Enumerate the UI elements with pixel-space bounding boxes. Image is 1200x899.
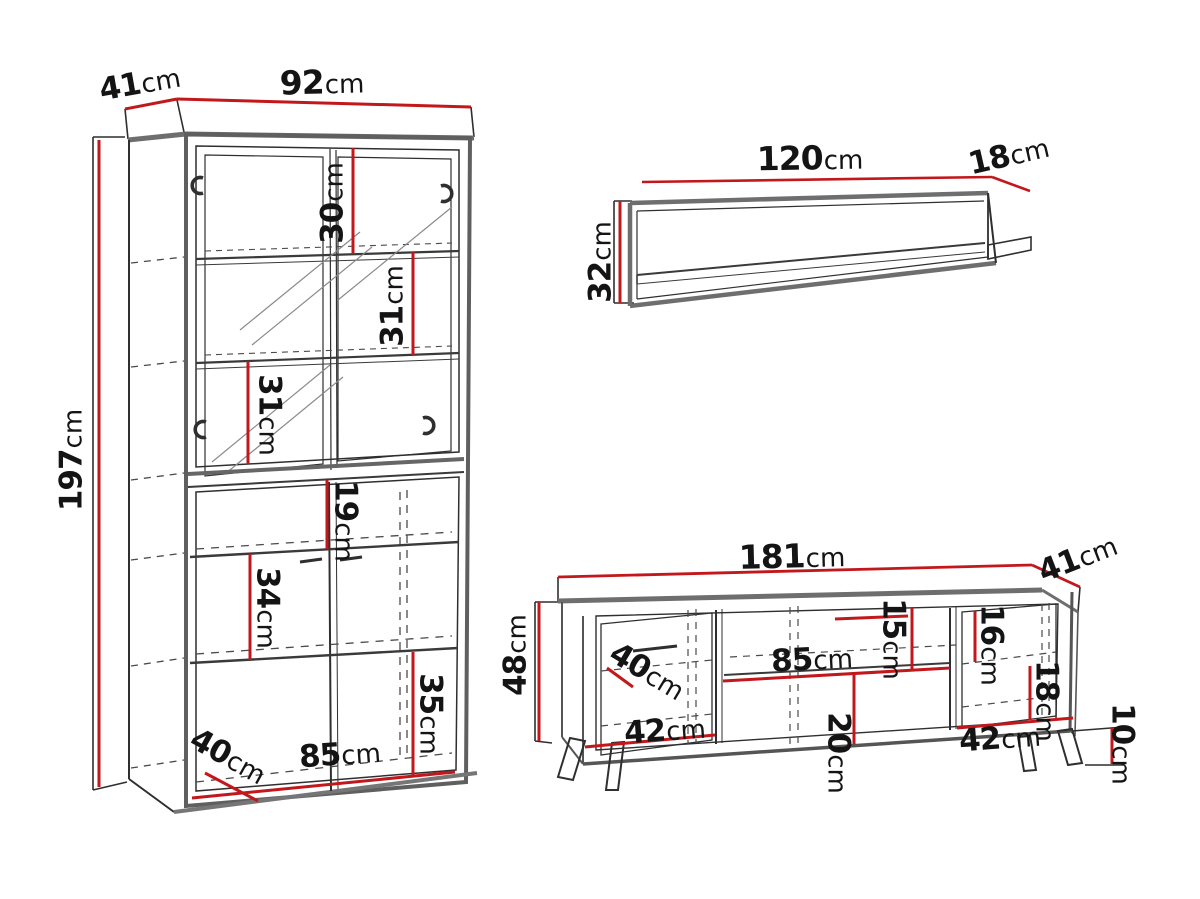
dim-cabinet-gap-fifth: 34cm	[252, 567, 283, 649]
cabinet-side-dashes	[131, 257, 184, 768]
dim-value: 20	[821, 712, 857, 753]
dim-cabinet-gap-fourth: 19cm	[330, 480, 361, 562]
tv-right-divider	[950, 607, 956, 730]
dim-cabinet-gap-second: 31cm	[378, 265, 409, 347]
diagram-canvas	[0, 0, 1200, 899]
dim-unit: cm	[823, 146, 863, 177]
dim-unit: cm	[503, 614, 533, 654]
dim-value: 85	[298, 737, 342, 776]
cabinet-lower-shelves	[190, 542, 459, 663]
dim-value: 92	[279, 62, 324, 102]
dim-unit: cm	[1000, 723, 1042, 756]
dim-value: 85	[770, 642, 813, 680]
shelf-width-line	[642, 177, 992, 182]
dim-tv-right-door-width: 42cm	[958, 721, 1042, 758]
dim-cabinet-height: 197cm	[57, 409, 88, 511]
dim-value: 42	[623, 713, 667, 752]
dim-cabinet-width: 92cm	[279, 64, 364, 99]
dim-tv-width: 181cm	[738, 538, 845, 574]
dim-value: 30	[315, 203, 351, 244]
dim-tv-height: 48cm	[501, 614, 532, 696]
dim-unit: cm	[329, 522, 359, 562]
dim-value: 15	[876, 598, 912, 639]
dim-unit: cm	[59, 409, 89, 449]
dim-cabinet-gap-top: 30cm	[318, 162, 349, 244]
dim-unit: cm	[805, 543, 845, 574]
shelf-body	[630, 193, 1031, 306]
shelf-depth-line	[992, 177, 1030, 191]
dim-unit: cm	[877, 640, 907, 680]
dim-tv-right-gap-top: 16cm	[976, 604, 1007, 686]
dim-tv-shelf-width: 85cm	[770, 642, 853, 677]
dim-value: 41	[97, 66, 144, 109]
dim-value: 197	[54, 449, 90, 511]
dim-unit: cm	[1106, 745, 1136, 785]
dim-value: 18	[1029, 660, 1065, 701]
furniture-dimension-diagram: 41cm 92cm 197cm 30cm 31cm 31cm 19cm 34cm…	[0, 0, 1200, 899]
dim-value: 19	[328, 480, 364, 521]
dim-value: 120	[756, 138, 823, 178]
dim-cabinet-inner-width: 85cm	[298, 737, 382, 774]
dim-value: 31	[252, 374, 288, 415]
dim-unit: cm	[380, 265, 410, 305]
dim-unit: cm	[320, 162, 350, 202]
dim-unit: cm	[253, 416, 283, 456]
dim-value: 32	[583, 262, 619, 303]
dim-unit: cm	[340, 739, 382, 772]
dim-unit: cm	[324, 69, 364, 100]
dim-tv-gap-below-shelf: 20cm	[823, 712, 854, 794]
dim-value: 34	[250, 567, 286, 608]
dim-cabinet-gap-sixth: 35cm	[415, 673, 446, 755]
dim-shelf-width: 120cm	[756, 141, 863, 176]
dim-value: 42	[958, 721, 1002, 760]
dim-value: 31	[375, 306, 411, 347]
cabinet-bottom-edge	[174, 773, 477, 812]
dim-value: 35	[413, 673, 449, 714]
cabinet-glass-shelves	[196, 243, 459, 369]
dim-unit: cm	[813, 644, 854, 676]
dim-tv-gap-above-shelf: 15cm	[878, 598, 909, 680]
dim-value: 16	[974, 604, 1010, 645]
dim-value: 10	[1105, 703, 1141, 744]
tv-left-divider	[716, 609, 722, 744]
dim-unit: cm	[588, 221, 618, 261]
dim-shelf-height: 32cm	[586, 221, 617, 303]
dim-value: 181	[738, 536, 805, 577]
dim-unit: cm	[665, 715, 707, 748]
dim-unit: cm	[822, 754, 852, 794]
dim-unit: cm	[251, 609, 281, 649]
cabinet-left-side	[129, 140, 174, 812]
dim-tv-leg-height: 10cm	[1107, 703, 1138, 785]
dim-tv-left-door-width: 42cm	[623, 713, 707, 750]
wall-shelf-drawing	[614, 177, 1031, 306]
dim-unit: cm	[414, 715, 444, 755]
dim-value: 48	[498, 655, 534, 696]
dim-unit: cm	[975, 646, 1005, 686]
dim-cabinet-gap-third: 31cm	[254, 374, 285, 456]
